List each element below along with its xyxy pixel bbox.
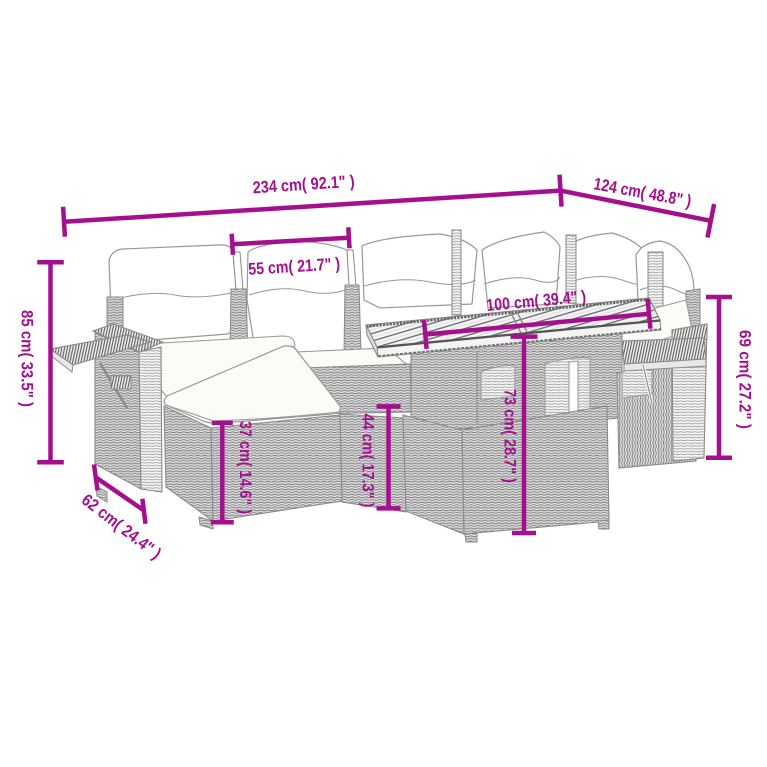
- svg-text:37 cm( 14.6" ): 37 cm( 14.6" ): [236, 421, 255, 514]
- svg-text:69 cm( 27.2" ): 69 cm( 27.2" ): [736, 330, 755, 429]
- svg-text:234 cm( 92.1" ): 234 cm( 92.1" ): [252, 172, 355, 198]
- svg-text:73 cm( 28.7" ): 73 cm( 28.7" ): [501, 389, 520, 483]
- svg-text:85 cm( 33.5" ): 85 cm( 33.5" ): [18, 310, 37, 407]
- svg-text:62 cm( 24.4" ): 62 cm( 24.4" ): [78, 490, 165, 563]
- svg-text:44 cm( 17.3" ): 44 cm( 17.3" ): [359, 414, 378, 508]
